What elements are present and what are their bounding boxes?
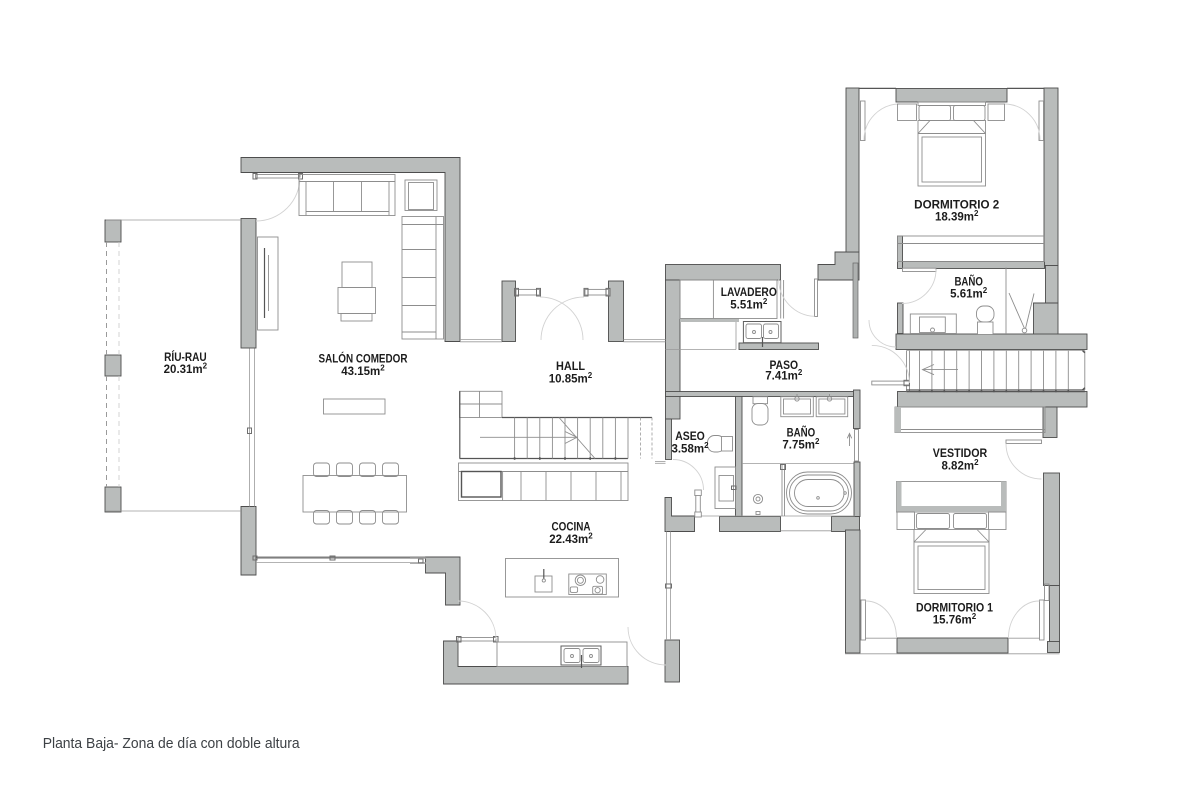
svg-text:18.39m2: 18.39m2 xyxy=(935,209,979,224)
svg-text:BAÑO: BAÑO xyxy=(954,276,983,289)
svg-text:8.82m2: 8.82m2 xyxy=(941,458,979,473)
svg-text:LAVADERO: LAVADERO xyxy=(721,287,777,299)
svg-text:20.31m2: 20.31m2 xyxy=(164,362,208,377)
svg-text:5.61m2: 5.61m2 xyxy=(950,286,988,301)
svg-text:HALL: HALL xyxy=(556,361,585,373)
svg-text:ASEO: ASEO xyxy=(675,431,705,443)
svg-text:7.41m2: 7.41m2 xyxy=(765,368,803,383)
svg-text:10.85m2: 10.85m2 xyxy=(549,371,593,386)
svg-text:COCINA: COCINA xyxy=(552,522,591,534)
svg-text:BAÑO: BAÑO xyxy=(787,427,816,440)
svg-text:22.43m2: 22.43m2 xyxy=(549,531,593,546)
svg-text:3.58m2: 3.58m2 xyxy=(671,441,709,456)
svg-text:43.15m2: 43.15m2 xyxy=(341,364,385,379)
svg-text:Planta Baja- Zona de día con d: Planta Baja- Zona de día con doble altur… xyxy=(43,736,301,752)
svg-text:DORMITORIO 1: DORMITORIO 1 xyxy=(916,603,994,615)
svg-text:5.51m2: 5.51m2 xyxy=(730,297,768,312)
svg-text:RÍU-RAU: RÍU-RAU xyxy=(164,351,207,364)
svg-text:15.76m2: 15.76m2 xyxy=(933,612,977,627)
svg-text:7.75m2: 7.75m2 xyxy=(782,437,820,452)
svg-text:DORMITORIO 2: DORMITORIO 2 xyxy=(914,200,999,212)
svg-text:VESTIDOR: VESTIDOR xyxy=(933,448,988,460)
svg-text:SALÓN COMEDOR: SALÓN COMEDOR xyxy=(319,353,409,366)
